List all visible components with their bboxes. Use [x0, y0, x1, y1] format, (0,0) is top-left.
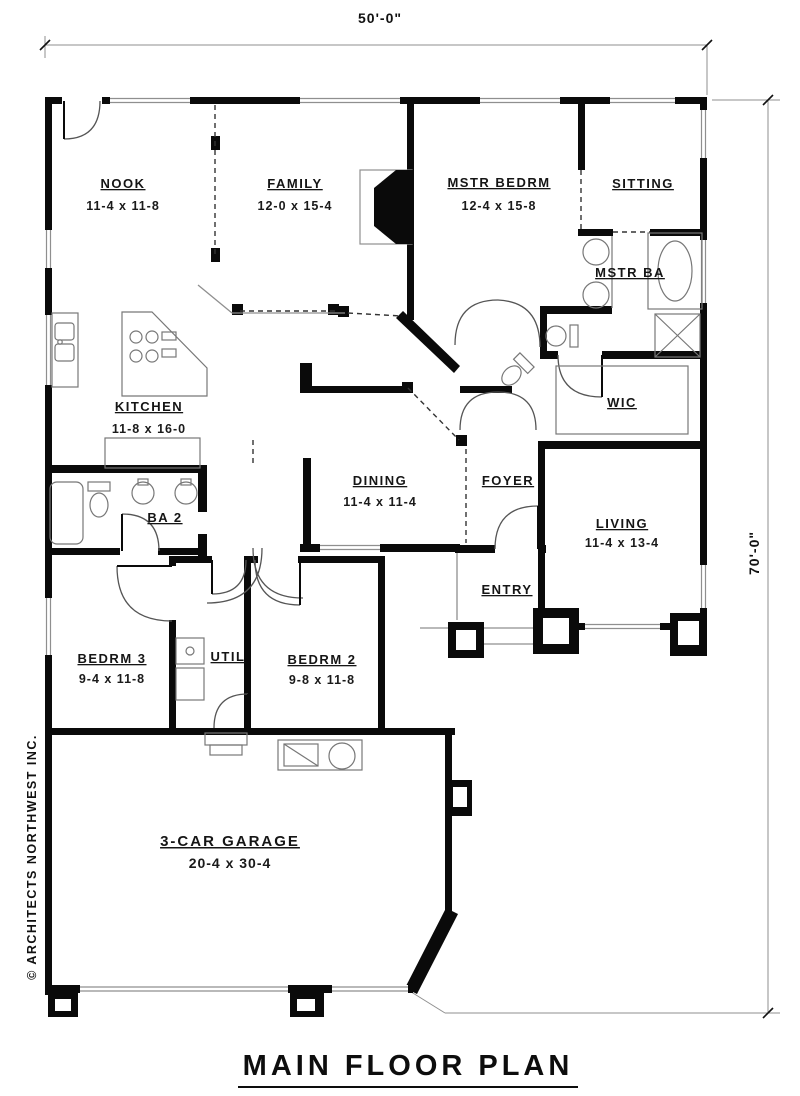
- plan-title: MAIN FLOOR PLAN: [238, 1050, 578, 1088]
- room-label-ba2: BA 2: [147, 510, 182, 525]
- cooktop-burner: [130, 331, 142, 343]
- water-heater-icon: [329, 743, 355, 769]
- room-dims-garage: 20-4 x 30-4: [189, 855, 272, 871]
- room-label-foyer: FOYER: [482, 473, 534, 488]
- door-leaves: [64, 101, 602, 728]
- room-dims-living: 11-4 x 13-4: [585, 536, 659, 550]
- room-label-dining: DINING: [353, 473, 408, 488]
- toilet-icon: [90, 493, 108, 517]
- height-dimension-label: 70'-0": [746, 511, 762, 595]
- room-label-bedrm2: BEDRM 2: [287, 652, 356, 667]
- room-label-living: LIVING: [596, 516, 648, 531]
- room-label-mstr-bedrm: MSTR BEDRM: [447, 175, 550, 190]
- room-labels: NOOK 11-4 x 11-8 FAMILY 12-0 x 15-4 MSTR…: [77, 175, 673, 871]
- room-label-mstr-ba: MSTR BA: [595, 265, 665, 280]
- room-dims-family: 12-0 x 15-4: [258, 199, 333, 213]
- kitchen-island: [122, 312, 207, 396]
- master-bath-fixtures: [497, 233, 702, 434]
- cooktop-burner: [146, 331, 158, 343]
- room-label-wic: WIC: [607, 395, 637, 410]
- room-dims-bedrm3: 9-4 x 11-8: [79, 672, 145, 686]
- toilet-icon: [546, 326, 566, 346]
- cooktop-burner: [130, 350, 142, 362]
- toilet-tank: [570, 325, 578, 347]
- fireplace: [360, 170, 414, 244]
- room-dims-dining: 11-4 x 11-4: [343, 495, 417, 509]
- kitchen-sink: [55, 344, 74, 361]
- kitchen-peninsula: [105, 438, 200, 468]
- floor-plan-sheet: NOOK 11-4 x 11-8 FAMILY 12-0 x 15-4 MSTR…: [0, 0, 800, 1096]
- dryer-icon: [176, 668, 204, 700]
- room-label-nook: NOOK: [101, 176, 146, 191]
- room-label-sitting: SITTING: [612, 176, 674, 191]
- bathtub-icon: [50, 482, 83, 544]
- room-dims-nook: 11-4 x 11-8: [86, 199, 160, 213]
- sink-icon: [583, 282, 609, 308]
- piers: [48, 608, 707, 1017]
- sink-icon: [583, 239, 609, 265]
- room-dims-bedrm2: 9-8 x 11-8: [289, 673, 355, 687]
- room-label-bedrm3: BEDRM 3: [77, 651, 146, 666]
- floor-plan-drawing: NOOK 11-4 x 11-8 FAMILY 12-0 x 15-4 MSTR…: [0, 0, 800, 1096]
- width-dimension-label: 50'-0": [330, 10, 430, 26]
- room-label-util: UTIL: [211, 649, 246, 664]
- washer-icon: [176, 638, 204, 664]
- architect-credit: © ARCHITECTS NORTHWEST INC.: [25, 707, 39, 1007]
- room-label-entry: ENTRY: [481, 582, 532, 597]
- room-dims-mstr-bedrm: 12-4 x 15-8: [462, 199, 537, 213]
- kitchen-sink: [55, 323, 74, 340]
- dashed-beams: [215, 105, 650, 543]
- room-label-garage: 3-CAR GARAGE: [160, 833, 300, 850]
- hall-toilet-icon: [497, 353, 534, 390]
- room-label-family: FAMILY: [267, 176, 322, 191]
- cooktop-burner: [146, 350, 158, 362]
- room-label-kitchen: KITCHEN: [115, 399, 183, 414]
- kitchen-fixtures: [52, 312, 207, 468]
- toilet-tank: [88, 482, 110, 491]
- garage-step: [210, 745, 242, 755]
- garage-fixtures: [278, 740, 362, 770]
- door-arcs: [64, 101, 602, 728]
- room-dims-kitchen: 11-8 x 16-0: [112, 422, 186, 436]
